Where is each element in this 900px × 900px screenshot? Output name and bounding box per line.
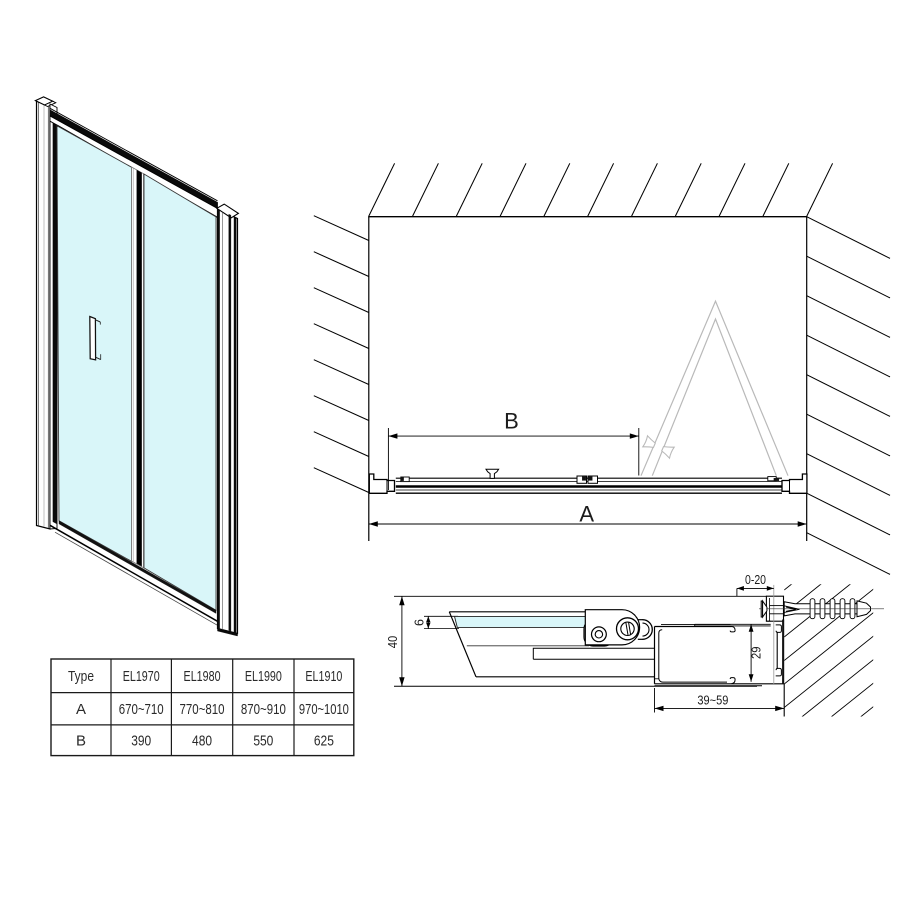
svg-text:A: A — [579, 502, 594, 527]
svg-text:EL1990: EL1990 — [245, 668, 282, 685]
svg-text:870~910: 870~910 — [241, 701, 286, 718]
svg-text:6: 6 — [412, 619, 426, 626]
svg-text:B: B — [504, 409, 519, 434]
svg-text:A: A — [76, 701, 86, 718]
svg-text:EL1980: EL1980 — [184, 668, 221, 685]
svg-text:625: 625 — [314, 733, 334, 750]
svg-text:770~810: 770~810 — [180, 701, 225, 718]
svg-text:29: 29 — [750, 647, 764, 660]
svg-text:0-20: 0-20 — [745, 573, 766, 587]
svg-text:EL1910: EL1910 — [305, 668, 342, 685]
svg-text:970~1010: 970~1010 — [299, 701, 349, 718]
svg-text:670~710: 670~710 — [119, 701, 164, 718]
svg-text:40: 40 — [386, 636, 400, 649]
svg-text:EL1970: EL1970 — [123, 668, 160, 685]
svg-text:Type: Type — [68, 668, 94, 685]
svg-text:39~59: 39~59 — [697, 693, 728, 707]
svg-text:480: 480 — [192, 733, 212, 750]
svg-text:B: B — [76, 733, 86, 750]
svg-text:390: 390 — [131, 733, 151, 750]
svg-text:550: 550 — [253, 733, 273, 750]
